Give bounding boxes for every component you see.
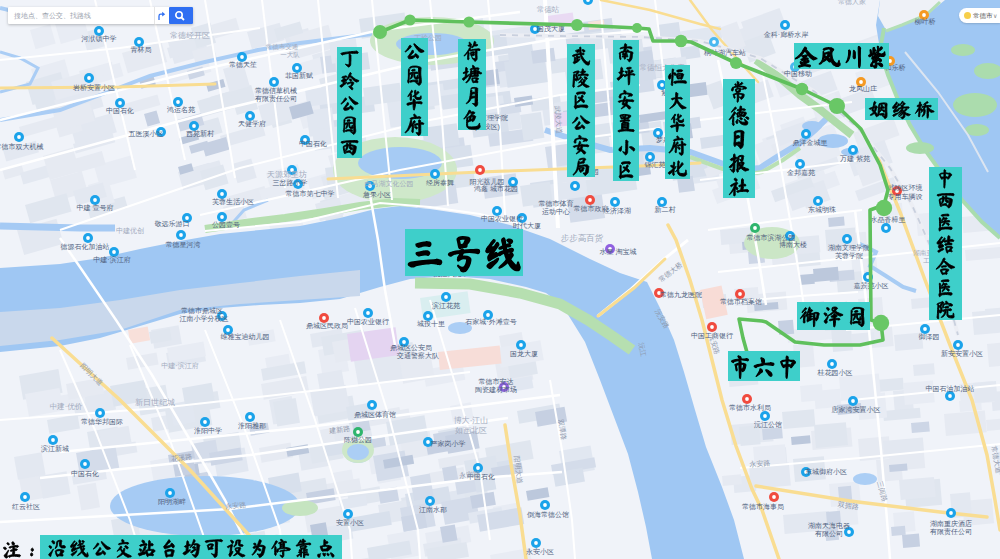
svg-text:经济泽湖: 经济泽湖 [603, 207, 631, 215]
svg-text:公园壹号: 公园壹号 [212, 221, 240, 229]
svg-text:一大队: 一大队 [280, 51, 300, 58]
svg-text:天源郊里坊: 天源郊里坊 [267, 170, 307, 179]
svg-text:江南水郡: 江南水郡 [419, 506, 447, 514]
svg-text:常德天笙: 常德天笙 [229, 61, 257, 69]
svg-text:湖南重庆酒店: 湖南重庆酒店 [930, 519, 972, 528]
svg-text:中国石化: 中国石化 [71, 470, 99, 478]
svg-text:河洑镇中学: 河洑镇中学 [81, 35, 117, 43]
svg-text:鼎城区民政局: 鼎城区民政局 [306, 322, 348, 330]
svg-text:陶瓷建材市场: 陶瓷建材市场 [475, 385, 517, 394]
svg-text:白马湖文化公园: 白马湖文化公园 [365, 179, 414, 188]
svg-text:中国石化: 中国石化 [106, 107, 134, 115]
svg-text:敬远乐游口: 敬远乐游口 [155, 220, 190, 228]
svg-text:桂花园小区: 桂花园小区 [817, 369, 853, 377]
svg-text:淮阳雅郡: 淮阳雅郡 [238, 422, 266, 430]
svg-text:龙凤山庄: 龙凤山庄 [849, 85, 877, 92]
svg-text:五医溪小区: 五医溪小区 [129, 130, 164, 138]
svg-text:博南大楼: 博南大楼 [779, 241, 807, 249]
svg-text:淮阳中学: 淮阳中学 [194, 427, 222, 435]
svg-text:德源石化加油站: 德源石化加油站 [61, 243, 110, 251]
svg-text:鼎城区公安局: 鼎城区公安局 [390, 344, 432, 352]
svg-text:鼎城区体育馆: 鼎城区体育馆 [354, 410, 396, 419]
svg-text:常德市海事局: 常德市海事局 [742, 502, 784, 511]
svg-text:沅江公馆: 沅江公馆 [754, 421, 782, 429]
svg-text:急果小区: 急果小区 [363, 191, 391, 198]
svg-text:新安安置小区: 新安安置小区 [941, 349, 983, 357]
svg-text:运动中心: 运动中心 [542, 208, 570, 215]
svg-text:滨江新城: 滨江新城 [41, 444, 69, 453]
svg-text:唐家湾安置小区: 唐家湾安置小区 [832, 405, 881, 414]
svg-text:新日世纪城: 新日世纪城 [135, 398, 175, 407]
svg-text:武陵区环境: 武陵区环境 [888, 183, 923, 192]
svg-text:金科·廊桥水岸: 金科·廊桥水岸 [764, 31, 808, 38]
svg-text:常德星河湾: 常德星河湾 [166, 241, 201, 249]
svg-text:水星 淘宝城: 水星 淘宝城 [600, 248, 637, 256]
svg-text:有限公司: 有限公司 [815, 530, 843, 537]
svg-text:陈樾公园: 陈樾公园 [344, 436, 372, 444]
svg-text:御泽园: 御泽园 [919, 333, 940, 341]
svg-text:水晶香樟里: 水晶香樟里 [871, 215, 906, 224]
svg-text:中建·滨江府: 中建·滨江府 [93, 255, 130, 264]
svg-text:中建优创: 中建优创 [116, 227, 144, 235]
svg-text:滨江花苑: 滨江花苑 [432, 301, 460, 310]
svg-text:严家岗小学: 严家岗小学 [431, 440, 466, 448]
svg-text:经房泰舞: 经房泰舞 [426, 179, 454, 187]
svg-text:三岔路小学: 三岔路小学 [273, 179, 308, 187]
svg-text:如画北区: 如画北区 [455, 426, 487, 435]
svg-text:永安小区: 永安小区 [526, 548, 554, 555]
svg-text:有限责任公司: 有限责任公司 [930, 528, 972, 536]
svg-text:天健学府: 天健学府 [238, 120, 266, 128]
svg-text:鼎洋金城里: 鼎洋金城里 [793, 139, 828, 147]
svg-text:芙蓉学院: 芙蓉学院 [835, 252, 863, 260]
svg-text:东城明珠: 东城明珠 [808, 206, 836, 213]
svg-text:东城御府小区: 东城御府小区 [805, 468, 847, 475]
svg-text:城投十里: 城投十里 [416, 320, 445, 328]
svg-text:倒海常德公馆: 倒海常德公馆 [527, 511, 569, 519]
svg-text:阳明湖畔: 阳明湖畔 [158, 498, 186, 506]
svg-text:青林局: 青林局 [131, 46, 152, 54]
svg-text:鸿运名苑: 鸿运名苑 [167, 106, 195, 114]
svg-text:交通警察大队: 交通警察大队 [396, 351, 439, 360]
svg-text:金邦嘉苑: 金邦嘉苑 [787, 169, 815, 177]
svg-text:中国农业银行: 中国农业银行 [481, 215, 523, 223]
svg-text:湖南天海电器: 湖南天海电器 [808, 522, 850, 530]
svg-text:常德市体育: 常德市体育 [539, 199, 574, 208]
svg-text:中建·优价: 中建·优价 [50, 402, 83, 411]
svg-text:中国农业银行: 中国农业银行 [347, 318, 389, 326]
svg-text:岩桥安置小区: 岩桥安置小区 [73, 84, 115, 92]
svg-text:新二村: 新二村 [655, 205, 676, 214]
svg-text:有限责任公司: 有限责任公司 [255, 95, 297, 103]
svg-text:西苑新村: 西苑新村 [186, 129, 214, 138]
svg-text:芙蓉生活小区: 芙蓉生活小区 [212, 198, 254, 206]
svg-text:常德市档案馆: 常德市档案馆 [720, 297, 762, 306]
svg-text:中国移动: 中国移动 [784, 70, 812, 78]
svg-text:常德经开区: 常德经开区 [170, 31, 210, 40]
svg-text:中国石油加油站: 中国石油加油站 [926, 385, 975, 393]
svg-text:常德市鼎城区: 常德市鼎城区 [181, 306, 223, 315]
svg-text:安置小区: 安置小区 [336, 519, 364, 526]
svg-text:常德九龙医院: 常德九龙医院 [660, 291, 702, 299]
svg-text:红云社区: 红云社区 [12, 503, 40, 510]
svg-text:石家城·外滩壹号: 石家城·外滩壹号 [465, 318, 516, 326]
svg-text:常德市交通: 常德市交通 [266, 43, 299, 51]
svg-text:中建·滨江府: 中建·滨江府 [161, 361, 198, 370]
svg-text:常德华邦国际: 常德华邦国际 [81, 418, 123, 426]
svg-text:中国石化: 中国石化 [299, 140, 327, 148]
svg-text:常德市安达: 常德市安达 [479, 377, 514, 386]
svg-text:鸿鑫 城市花园: 鸿鑫 城市花园 [474, 184, 518, 193]
svg-text:专用车辆设: 专用车辆设 [888, 193, 923, 201]
svg-text:国龙大厦: 国龙大厦 [510, 350, 538, 358]
svg-text:常德市双大机械: 常德市双大机械 [0, 142, 44, 151]
svg-text:常德市第七中学: 常德市第七中学 [286, 189, 335, 198]
svg-text:中建 壹号府: 中建 壹号府 [77, 204, 114, 212]
svg-text:常德站: 常德站 [537, 5, 560, 14]
svg-text:湖南文理学院: 湖南文理学院 [828, 243, 870, 252]
svg-text:博大·江山: 博大·江山 [454, 416, 489, 425]
svg-text:江南小学分校区: 江南小学分校区 [180, 315, 229, 323]
svg-text:菲国新赋: 菲国新赋 [285, 71, 313, 80]
svg-text:步步高百货: 步步高百货 [561, 233, 604, 243]
svg-text:柳叶桥: 柳叶桥 [915, 18, 936, 25]
svg-text:常德信草机械: 常德信草机械 [255, 87, 297, 95]
svg-text:锦汇苑: 锦汇苑 [644, 161, 666, 169]
svg-text:维雅宝迪幼儿园: 维雅宝迪幼儿园 [221, 333, 270, 341]
svg-text:常德市水利局: 常德市水利局 [729, 403, 771, 412]
svg-text:时代大厦: 时代大厦 [513, 222, 541, 230]
svg-text:万建 紫苑: 万建 紫苑 [840, 155, 870, 163]
